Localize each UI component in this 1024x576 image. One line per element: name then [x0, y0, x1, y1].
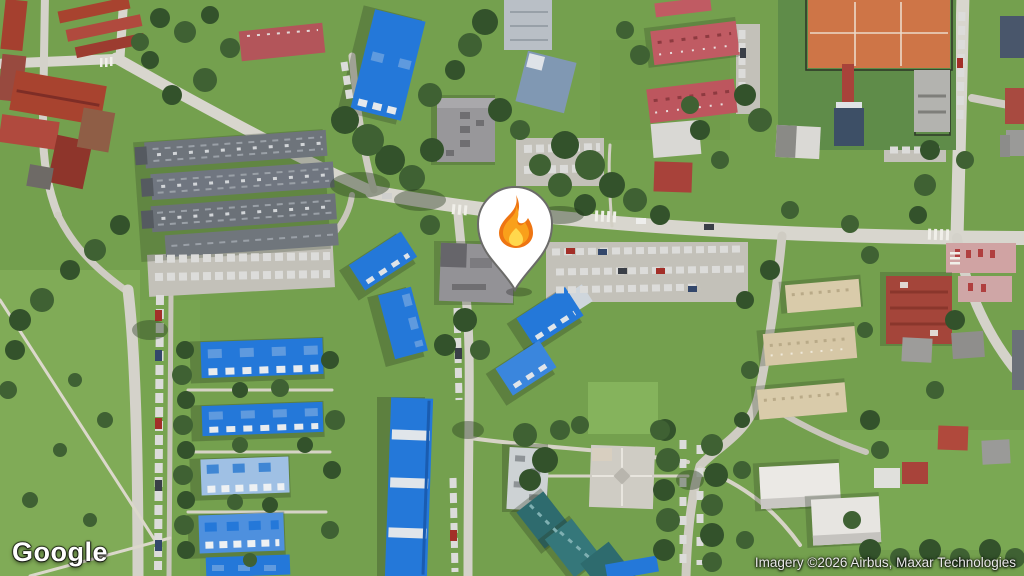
google-maps-satellite-view[interactable]: Google Imagery ©2026 Airbus, Maxar Techn…	[0, 0, 1024, 576]
google-logo[interactable]: Google	[12, 537, 108, 568]
satellite-imagery	[0, 0, 1024, 576]
long-blue-building	[377, 397, 433, 576]
imagery-attribution: Imagery ©2026 Airbus, Maxar Technologies	[755, 555, 1016, 570]
warehouse-buildings	[133, 129, 339, 263]
red-brown-building	[880, 272, 952, 346]
